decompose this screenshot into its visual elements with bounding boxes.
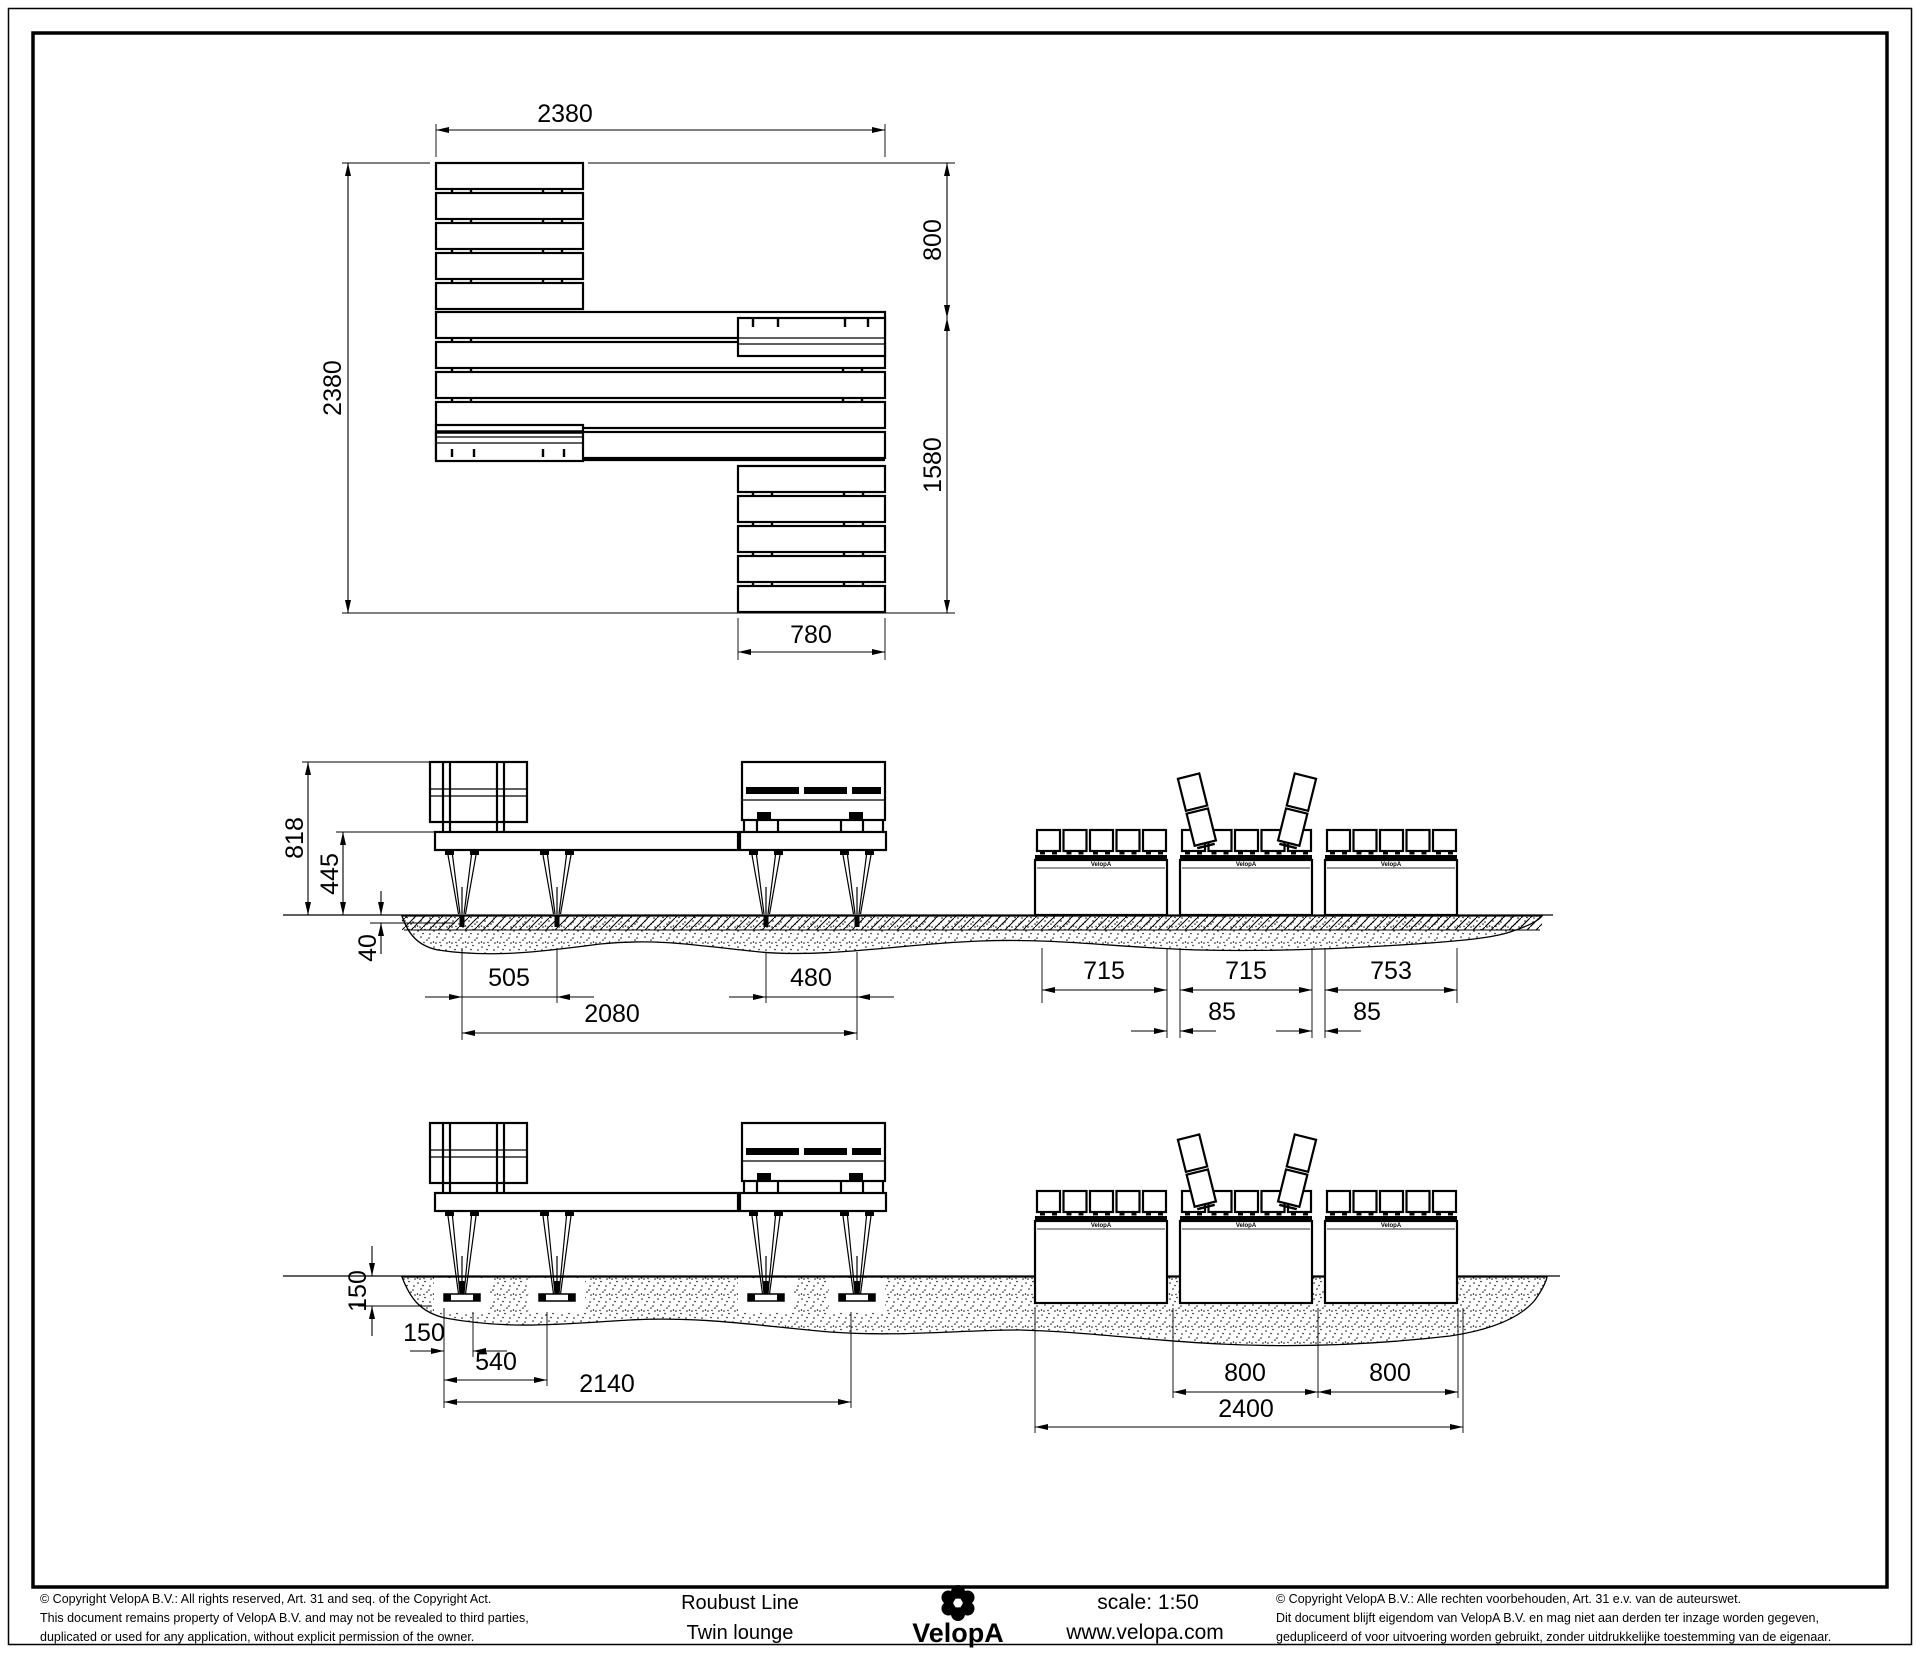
- plan-bench-south: [738, 466, 885, 612]
- dim-module-pitch-2: 800: [1369, 1359, 1411, 1387]
- dim-module-2: 715: [1225, 957, 1267, 985]
- dim-overall-length: 2400: [1218, 1395, 1274, 1423]
- panel-brand-mark: VelopA: [1091, 862, 1112, 868]
- brand-name: VelopA: [912, 1618, 1004, 1648]
- copyright-en-line2: This document remains property of VelopA…: [40, 1611, 529, 1625]
- inner-border: [33, 33, 1887, 1587]
- dim-plan-width: 2380: [537, 100, 593, 128]
- panel-brand-mark: VelopA: [1091, 1223, 1112, 1229]
- dim-leg-spacing-right: 480: [790, 964, 832, 992]
- panel-brand-mark: VelopA: [1381, 1223, 1402, 1229]
- dim-foot-width: 150: [403, 1319, 445, 1347]
- bench-side-view: [430, 1123, 886, 1211]
- plan-bench-north: [436, 163, 583, 309]
- copyright-en-line1: © Copyright VelopA B.V.: All rights rese…: [40, 1592, 491, 1606]
- plan-view: 2380 2380 800 1580 780: [319, 100, 955, 660]
- scale-label: scale: 1:50: [1097, 1591, 1199, 1614]
- dim-joint-1: 85: [1208, 998, 1236, 1026]
- website: www.velopa.com: [1065, 1621, 1224, 1644]
- dim-leg-span: 2080: [584, 1000, 640, 1028]
- dim-plan-bench-width: 780: [790, 621, 832, 649]
- bench-front-view: VelopA VelopA VelopA: [1035, 1134, 1457, 1303]
- dim-plan-side-length: 1580: [919, 437, 947, 493]
- dim-seat-height: 445: [316, 853, 344, 895]
- copyright-en-line3: duplicated or used for any application, …: [40, 1630, 474, 1644]
- title-block: © Copyright VelopA B.V.: All rights rese…: [40, 1585, 1831, 1648]
- dim-plan-depth: 2380: [319, 360, 347, 416]
- logo-center: [954, 1599, 963, 1608]
- panel-brand-mark: VelopA: [1236, 1223, 1257, 1229]
- bench-side-view: [430, 762, 886, 850]
- copyright-nl-line3: gedupliceerd of voor uitvoering worden g…: [1276, 1630, 1831, 1644]
- technical-drawing: 2380 2380 800 1580 780 VelopA V: [0, 0, 1920, 1653]
- dim-anchor-depth: 40: [354, 934, 382, 962]
- dim-module-pitch-1: 800: [1224, 1359, 1266, 1387]
- product-line: Roubust Line: [681, 1592, 799, 1614]
- dim-leg-spacing-left: 505: [488, 964, 530, 992]
- dim-total-height: 818: [281, 817, 309, 859]
- copyright-nl-line2: Dit document blijft eigendom van VelopA …: [1276, 1611, 1819, 1625]
- dim-plan-back-offset: 800: [919, 219, 947, 261]
- product-model: Twin lounge: [687, 1622, 794, 1644]
- dim-foundation-depth: 150: [344, 1270, 372, 1312]
- surface-elevation: VelopA VelopA VelopA 818 445 40 505 480: [281, 762, 1553, 1040]
- velopa-logo: VelopA: [912, 1585, 1004, 1648]
- dim-joint-2: 85: [1353, 998, 1381, 1026]
- drawing-sheet: 2380 2380 800 1580 780 VelopA V: [0, 0, 1920, 1653]
- dim-module-1: 715: [1083, 957, 1125, 985]
- panel-brand-mark: VelopA: [1236, 862, 1257, 868]
- inground-elevation: VelopA VelopA VelopA 150 150 540 2140 80…: [283, 1123, 1560, 1433]
- dim-foot-span: 2140: [579, 1370, 635, 1398]
- plan-backrest-east: [738, 318, 885, 356]
- panel-brand-mark: VelopA: [1381, 862, 1402, 868]
- dim-module-3: 753: [1370, 957, 1412, 985]
- bench-front-view: VelopA VelopA VelopA: [1035, 773, 1457, 915]
- dim-foot-spacing: 540: [475, 1348, 517, 1376]
- copyright-nl-line1: © Copyright VelopA B.V.: Alle rechten vo…: [1276, 1592, 1741, 1606]
